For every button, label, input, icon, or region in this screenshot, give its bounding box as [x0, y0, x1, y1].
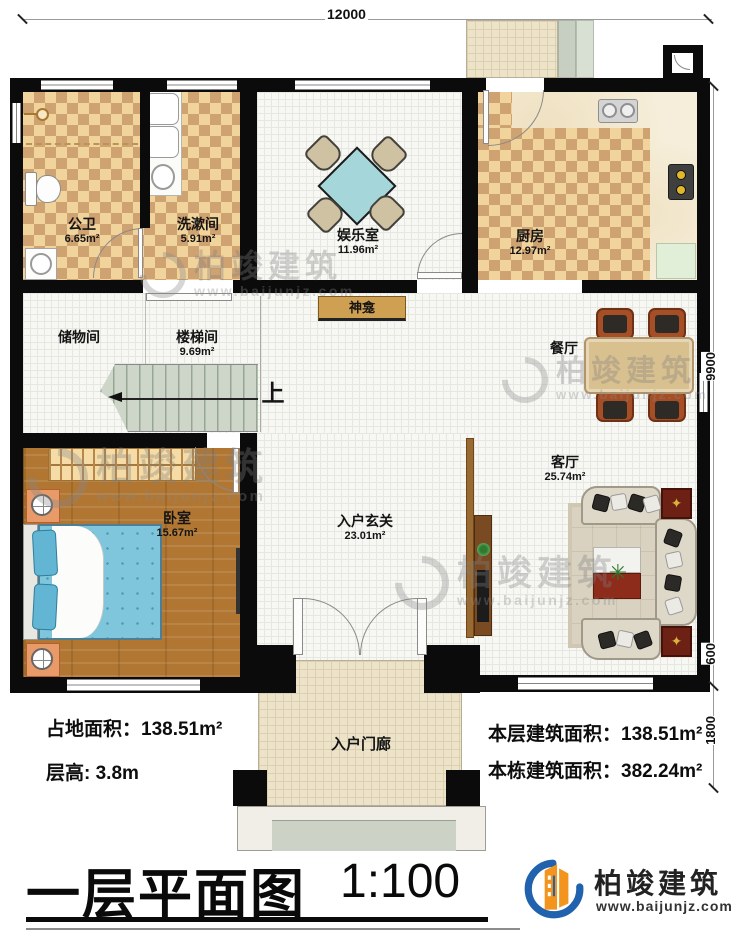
wall-kitchen-divider — [462, 78, 478, 280]
towel-bar — [24, 113, 38, 115]
room-label-washroom: 洗漱间 5.91m² — [163, 217, 233, 245]
wall-foyer-south-left — [240, 645, 296, 693]
window-washroom-top — [167, 80, 237, 90]
dining-chair-2 — [648, 308, 686, 340]
title-underline-thin — [26, 928, 520, 930]
toilet-bowl — [36, 175, 61, 203]
room-name: 入户门廊 — [318, 737, 404, 754]
stat-floor-height: 层高: 3.8m — [46, 758, 139, 785]
stairwell-edge-line — [260, 296, 261, 432]
side-table-bottom: ✦ — [661, 626, 692, 657]
room-label-living: 客厅 25.74m² — [530, 455, 600, 483]
stove-burner-2 — [676, 185, 686, 195]
room-name: 餐厅 — [544, 341, 584, 357]
table-plant: ✳ — [606, 561, 630, 585]
room-name: 洗漱间 — [163, 217, 233, 233]
stat-floor-area: 本层建筑面积：138.51m² — [488, 719, 702, 746]
room-label-entertainment: 娱乐室 11.96m² — [320, 228, 396, 256]
chair-cushion — [603, 315, 627, 333]
room-label-stairwell: 楼梯间 9.69m² — [162, 330, 232, 358]
room-label-storage: 储物间 — [47, 330, 111, 346]
porch-column-right — [446, 770, 480, 806]
back-patio — [466, 20, 558, 78]
bedroom-door-opening — [207, 433, 240, 448]
entertainment-door-leaf — [417, 272, 462, 279]
chair-cushion — [655, 401, 679, 419]
stove-burner-1 — [676, 170, 686, 180]
kitchen-floor — [478, 128, 650, 280]
sofa-right — [655, 518, 697, 626]
room-area: 11.96m² — [320, 244, 396, 256]
porch-step-inner — [272, 820, 456, 851]
wall-left — [10, 78, 23, 693]
wall-entertainment-kitchen-corner — [462, 280, 478, 293]
storage-divider-line — [145, 293, 146, 364]
sofa-cushion — [616, 630, 635, 649]
room-label-dining: 餐厅 — [544, 341, 584, 357]
wardrobe — [48, 448, 196, 481]
dining-chair-4 — [648, 390, 686, 422]
entry-door-leaf-left — [293, 598, 303, 655]
pillow-1 — [32, 529, 58, 576]
dimension-top-width: 12000 — [325, 6, 368, 22]
stairs-center-line — [122, 398, 258, 400]
window-bathroom-top — [41, 80, 113, 90]
stat-footprint: 占地面积：138.51m² — [46, 714, 222, 741]
chair-cushion — [603, 401, 627, 419]
sofa-cushion — [665, 551, 684, 570]
wall-bath-washroom-divider — [140, 92, 150, 228]
shower-curtain-line — [26, 143, 138, 145]
wall-kitchen-bottom — [582, 280, 710, 293]
brand-logo-svg — [522, 854, 588, 924]
dining-chair-1 — [596, 308, 634, 340]
chair-cushion — [655, 315, 679, 333]
bed-sheet — [52, 526, 104, 638]
porch-column-left — [233, 770, 267, 806]
sofa-cushion — [610, 493, 629, 512]
brand-name: 柏竣建筑 — [594, 862, 722, 902]
stairs-direction-arrow — [108, 392, 122, 402]
chimney-flue — [672, 53, 693, 73]
plan-scale: 1:100 — [340, 854, 460, 909]
fridge — [656, 243, 696, 279]
dimension-right-step: 600 — [701, 643, 720, 665]
room-area: 9.69m² — [162, 346, 232, 358]
pillow-2 — [32, 583, 58, 630]
back-step-1 — [558, 20, 576, 78]
room-label-bathroom: 公卫 6.65m² — [52, 217, 112, 245]
kitchen-back-door-leaf — [483, 90, 489, 144]
dimension-right-main: 9900 — [701, 352, 720, 381]
side-table-top: ✦ — [661, 488, 692, 519]
room-area: 12.97m² — [492, 245, 568, 257]
sofa-cushion — [591, 493, 610, 512]
room-area: 23.01m² — [322, 530, 408, 542]
room-label-bedroom: 卧室 15.67m² — [142, 511, 212, 539]
washer-unit-1 — [145, 93, 179, 125]
room-area: 15.67m² — [142, 527, 212, 539]
wall-foyer-south-right — [424, 645, 480, 693]
window-living-bottom — [518, 677, 653, 690]
wall-washroom-entertainment-divider — [240, 78, 257, 293]
window-bathroom-left — [12, 103, 21, 143]
kitchen-sink-basin-2 — [620, 103, 635, 118]
room-area: 5.91m² — [163, 233, 233, 245]
wall-bathroom-bottom — [23, 280, 143, 293]
sofa-cushion — [664, 574, 683, 593]
room-area: 6.65m² — [52, 233, 112, 245]
room-name: 神龛 — [318, 301, 406, 316]
room-name: 娱乐室 — [320, 228, 396, 244]
bathroom-door-leaf — [138, 228, 143, 278]
brand-block: 柏竣建筑 www.baijunjz.com — [522, 850, 742, 930]
washer-unit-2 — [145, 126, 179, 158]
window-entertainment-top — [295, 80, 430, 90]
brand-logo-icon — [522, 854, 588, 924]
kitchen-sink-basin-1 — [602, 103, 617, 118]
room-name: 客厅 — [530, 455, 600, 471]
lamp-top — [31, 494, 53, 516]
bathroom-sink-basin — [30, 253, 52, 275]
stairs-up-label: 上 — [258, 381, 288, 407]
sofa-cushion — [597, 630, 616, 649]
sofa-bottom — [581, 618, 661, 660]
room-name: 储物间 — [47, 330, 111, 346]
brand-url: www.baijunjz.com — [596, 898, 733, 914]
wall-washroom-bottom-stub — [233, 280, 240, 293]
window-bedroom-bottom — [67, 679, 200, 691]
room-name: 厨房 — [492, 229, 568, 245]
bedroom-door-leaf — [233, 448, 239, 493]
room-area: 25.74m² — [530, 471, 600, 483]
dimension-right-porch: 1800 — [701, 716, 720, 745]
entry-door-leaf-right — [417, 598, 427, 655]
room-label-porch: 入户门廊 — [318, 737, 404, 754]
stairs — [100, 364, 258, 432]
room-label-foyer: 入户玄关 23.01m² — [322, 514, 408, 542]
partition-screen — [466, 438, 474, 638]
room-name: 公卫 — [52, 217, 112, 233]
room-label-kitchen: 厨房 12.97m² — [492, 229, 568, 257]
wall-entertainment-bottom — [257, 280, 417, 293]
washroom-door-leaf — [146, 293, 232, 301]
dimension-line-right — [713, 86, 714, 788]
sofa-cushion — [633, 630, 654, 651]
cabinet-tv — [477, 570, 489, 622]
sofa-cushion — [664, 596, 684, 616]
flue-curve — [674, 55, 690, 70]
room-label-shrine: 神龛 — [318, 301, 406, 316]
room-name: 卧室 — [142, 511, 212, 527]
wall-bedroom-top — [23, 433, 207, 448]
room-name: 入户玄关 — [322, 514, 408, 530]
stat-total-area: 本栋建筑面积：382.24m² — [488, 756, 702, 783]
dining-table — [584, 337, 694, 394]
lamp-bottom — [31, 648, 53, 670]
sofa-cushion — [642, 494, 662, 514]
floor-plan-page: ✳ ✦ ✦ 公卫 6.65m² 洗漱间 — [0, 0, 750, 938]
title-underline-thick — [26, 917, 488, 922]
sofa-cushion — [663, 528, 684, 549]
stairs-up-text: 上 — [258, 381, 288, 407]
sofa-top — [581, 486, 661, 525]
washroom-sink — [151, 164, 175, 190]
back-step-2 — [576, 20, 594, 78]
dining-chair-3 — [596, 390, 634, 422]
room-name: 楼梯间 — [162, 330, 232, 346]
cabinet-plant — [477, 543, 490, 556]
